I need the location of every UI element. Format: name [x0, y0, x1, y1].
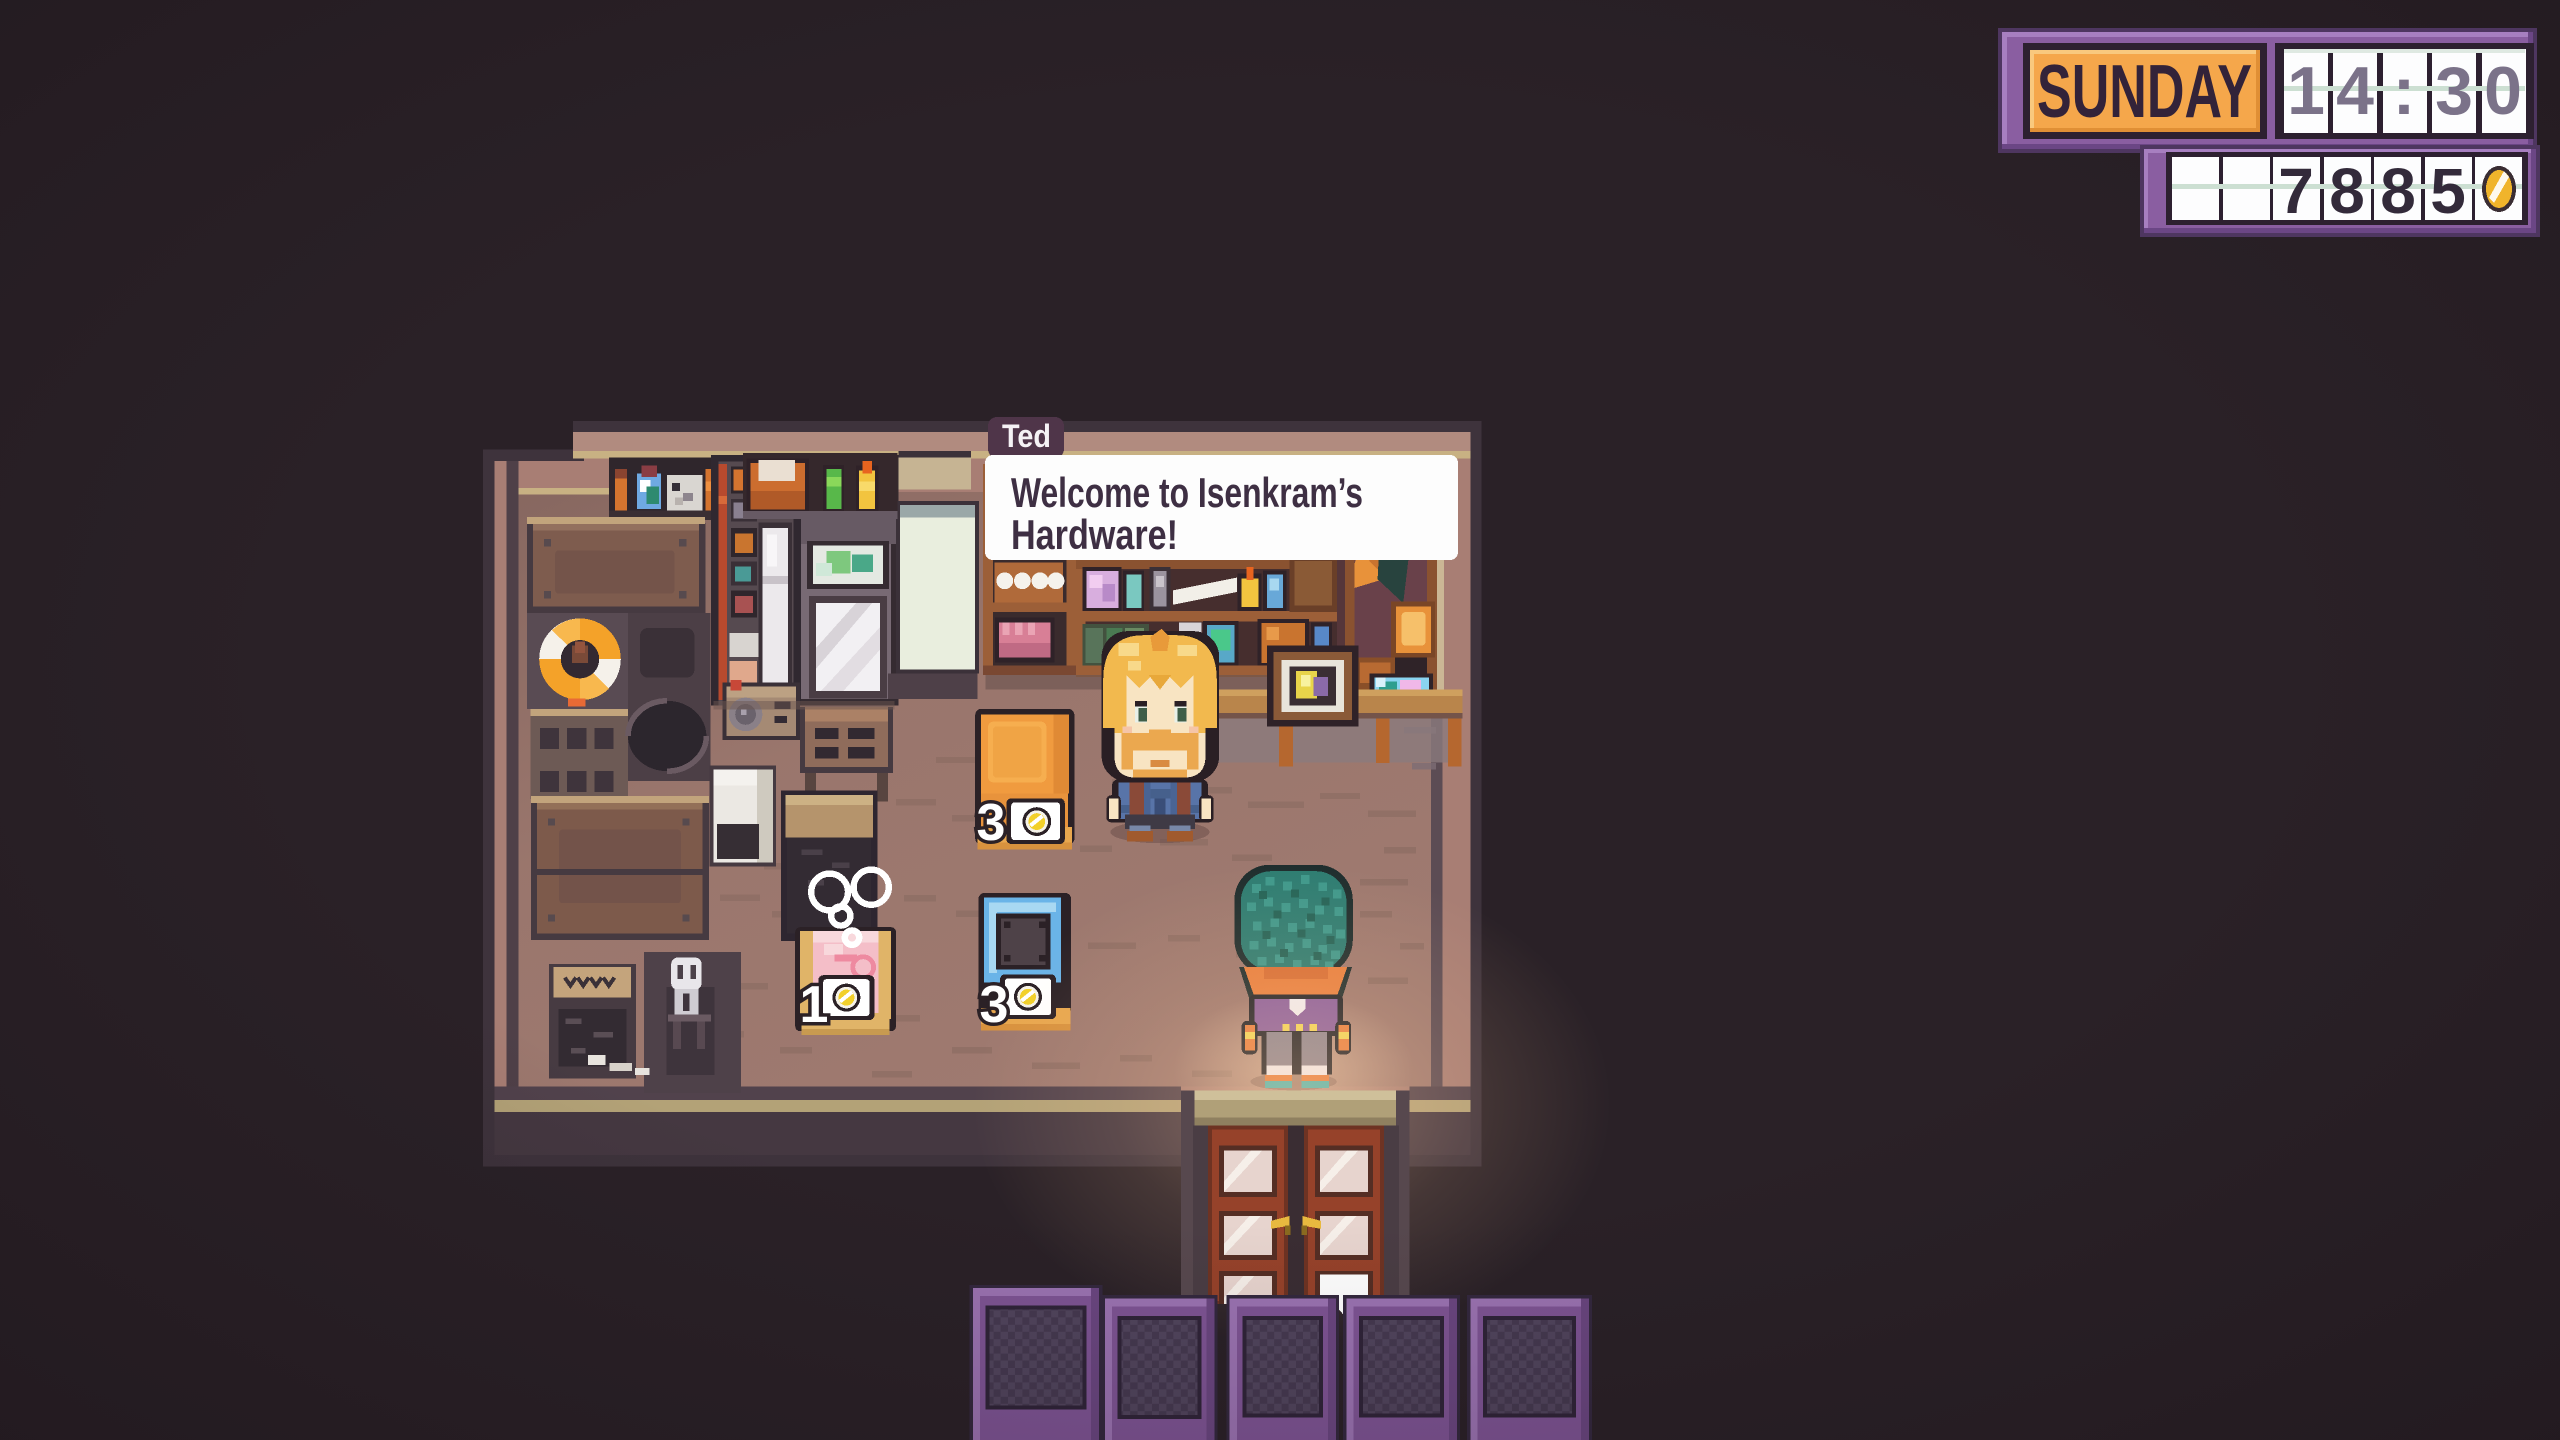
svg-text:Welcome to Isenkram’s: Welcome to Isenkram’s: [1011, 469, 1363, 516]
svg-text:8: 8: [2329, 155, 2365, 227]
svg-text:8: 8: [2380, 155, 2416, 227]
svg-text:3: 3: [977, 794, 1006, 852]
svg-text:3: 3: [980, 976, 1009, 1034]
svg-text:0: 0: [2484, 53, 2522, 129]
svg-text:5: 5: [2430, 155, 2466, 227]
svg-text:7: 7: [2278, 155, 2314, 227]
svg-text:1: 1: [2287, 53, 2325, 129]
svg-text:Ted: Ted: [1002, 418, 1051, 454]
svg-text:SUNDAY: SUNDAY: [2037, 49, 2252, 133]
svg-text:3: 3: [2435, 53, 2473, 129]
svg-text:1: 1: [800, 976, 829, 1034]
svg-text:4: 4: [2336, 53, 2374, 129]
svg-text::: :: [2393, 53, 2416, 129]
svg-text:Hardware!: Hardware!: [1011, 511, 1178, 558]
